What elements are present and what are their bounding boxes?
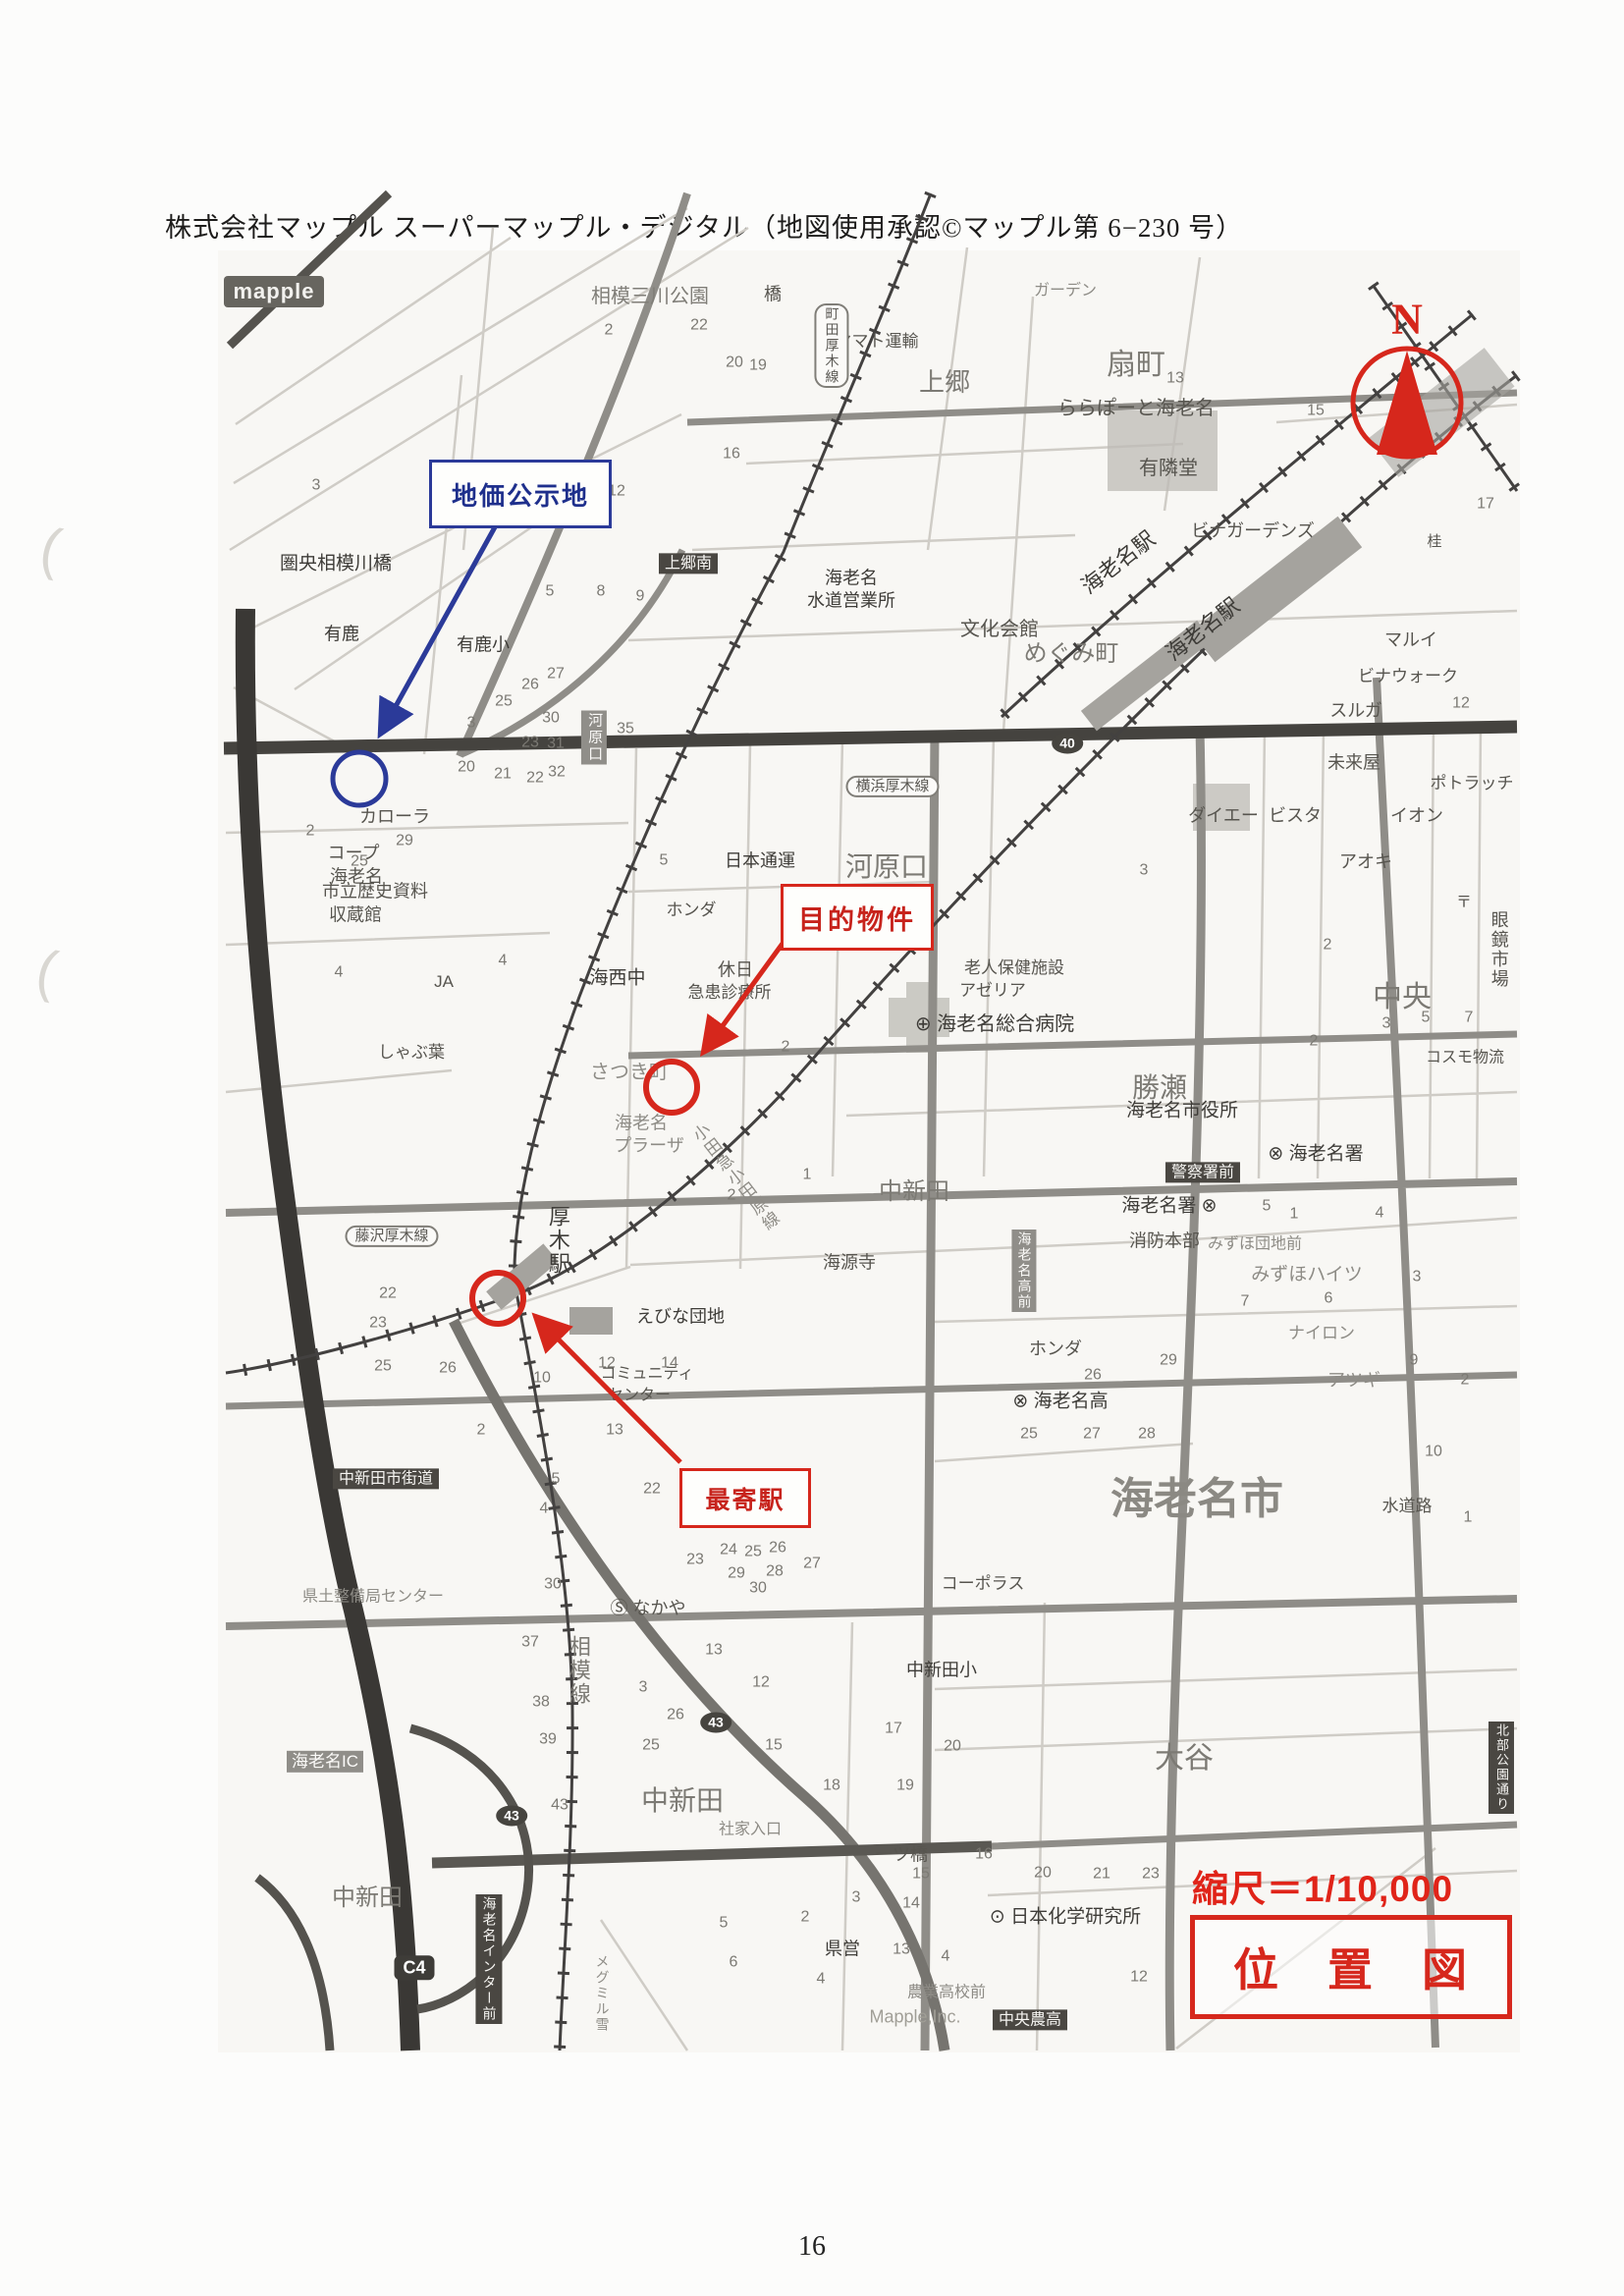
parcel-number: 35 [617, 720, 634, 737]
map-label: 眼鏡市場 [1489, 910, 1507, 989]
parcel-number: 5 [1263, 1197, 1272, 1214]
land-price-callout: 地価公示地 [429, 460, 612, 528]
map-label: コスモ物流 [1426, 1049, 1504, 1066]
parcel-number: 26 [769, 1539, 786, 1556]
map-label: ナイロン [1288, 1325, 1355, 1342]
parcel-number: 20 [944, 1737, 961, 1754]
parcel-number: 2 [1324, 936, 1332, 953]
map-label: さつき町 [590, 1063, 669, 1084]
map-label: しゃぶ葉 [378, 1044, 445, 1062]
map-label: アゼリア [959, 982, 1026, 1000]
parcel-number: 18 [823, 1777, 840, 1793]
parcel-number: 1 [803, 1166, 812, 1182]
map-label: 桂 [1427, 534, 1441, 550]
map-label: プラーザ [614, 1136, 684, 1155]
parcel-number: 30 [542, 709, 560, 726]
map-label: C4 [394, 1955, 434, 1980]
map-label: 中新田市街道 [333, 1468, 439, 1489]
parcel-number: 13 [1166, 369, 1184, 386]
parcel-number: 9 [636, 587, 645, 604]
map-label: ホンダ [1029, 1339, 1082, 1358]
map-label: 海老名 [330, 867, 383, 886]
parcel-number: 28 [766, 1562, 784, 1579]
map-label: 北部公園通り [1489, 1722, 1514, 1814]
parcel-number: 28 [1138, 1425, 1156, 1442]
map-label: ⊙ 日本化学研究所 [990, 1908, 1141, 1929]
map-label: えびな団地 [636, 1307, 725, 1326]
parcel-number: 26 [667, 1706, 684, 1722]
parcel-number: 4 [942, 1947, 950, 1964]
map-label: 43 [700, 1712, 731, 1732]
parcel-number: 29 [1160, 1351, 1177, 1368]
map-label: 海老名駅 [1162, 594, 1244, 666]
map-label: スルガ [1329, 701, 1381, 720]
map-label: 海源寺 [823, 1253, 876, 1272]
parcel-number: 23 [521, 734, 539, 750]
parcel-number: 13 [893, 1941, 910, 1957]
parcel-number: 15 [912, 1865, 930, 1882]
parcel-number: 38 [532, 1693, 550, 1710]
parcel-number: 3 [1382, 1014, 1391, 1031]
map-label: 圏央相模川橋 [280, 555, 392, 575]
map-label: 海老名 [825, 569, 878, 587]
map-label: ビナガーデンズ [1191, 521, 1315, 540]
parcel-number: 25 [374, 1357, 392, 1374]
map-label: 町田厚木線 [814, 303, 848, 388]
parcel-number: 10 [1425, 1443, 1442, 1459]
map-label: 扇町 [1107, 350, 1165, 381]
parcel-number: 2 [1461, 1371, 1470, 1388]
parcel-number: 12 [1130, 1968, 1148, 1985]
map-label: イオン [1390, 806, 1443, 825]
parcel-number: 25 [1020, 1425, 1038, 1442]
parcel-number: 15 [1307, 402, 1325, 418]
parcel-number: 15 [765, 1736, 783, 1753]
map-label: ガーデン [1034, 282, 1097, 299]
nearest-station-callout: 最寄駅 [679, 1468, 811, 1528]
parcel-number: 7 [1241, 1292, 1250, 1309]
parcel-number: 12 [752, 1673, 770, 1690]
parcel-number: 3 [1140, 861, 1149, 878]
parcel-number: 22 [690, 316, 708, 333]
map-label: カローラ [359, 807, 430, 826]
parcel-number: 4 [1376, 1204, 1384, 1221]
map-label: 海西中 [589, 969, 645, 990]
parcel-number: 26 [439, 1359, 457, 1376]
parcel-number: 23 [1142, 1865, 1160, 1882]
parcel-number: 26 [521, 676, 539, 692]
map-label: アツギ [1327, 1371, 1380, 1390]
map-label: ビスタ [1269, 806, 1322, 825]
map-label: 中央農高 [993, 2009, 1067, 2030]
parcel-number: 13 [705, 1641, 723, 1658]
map-label: 水道路 [1382, 1498, 1433, 1515]
parcel-number: 2 [605, 321, 614, 338]
parcel-number: 17 [885, 1720, 902, 1736]
parcel-number: 4 [540, 1500, 549, 1516]
map-label: 中新田 [879, 1179, 949, 1205]
parcel-number: 17 [1477, 495, 1494, 512]
parcel-number: 8 [597, 582, 606, 599]
parcel-number: 37 [521, 1633, 539, 1650]
parcel-number: 4 [499, 952, 508, 968]
parcel-number: 21 [1093, 1865, 1110, 1882]
map-label: ⊗ 海老名高 [1012, 1393, 1108, 1413]
parcel-number: 22 [379, 1285, 397, 1301]
map-label: 有鹿 [324, 625, 359, 643]
parcel-number: 29 [396, 832, 413, 848]
parcel-number: 3 [1413, 1268, 1422, 1285]
map-label: ポトラッチ [1431, 775, 1514, 793]
map-label: アオキ [1339, 852, 1392, 871]
map-label: ⊗ 海老名署 [1268, 1145, 1363, 1166]
parcel-number: 21 [494, 765, 512, 782]
parcel-number: 13 [606, 1421, 623, 1438]
map-label: 43 [496, 1805, 527, 1826]
map-label: 上郷 [919, 368, 970, 396]
map-label: コーポラス [942, 1575, 1025, 1593]
map-label: 海老名 [615, 1114, 668, 1132]
map-label: みずほ団地前 [1208, 1235, 1302, 1252]
scale-note: 縮尺＝1/10,000 [1192, 1859, 1453, 1912]
parcel-number: 2 [1310, 1032, 1319, 1049]
parcel-number: 1 [1464, 1508, 1473, 1525]
map-label: 有鹿小 [457, 635, 510, 654]
parcel-number: 25 [495, 692, 513, 709]
map-label: ⊕ 海老名総合病院 [915, 1014, 1074, 1036]
location-map-stamp: 位 置 図 [1190, 1915, 1512, 2019]
map-label: 中新田 [641, 1786, 724, 1816]
parcel-number: 20 [458, 758, 475, 775]
parcel-number: 5 [720, 1914, 729, 1931]
parcel-number: 19 [896, 1777, 914, 1793]
map-label: 消防本部 [1129, 1231, 1200, 1250]
map-label: 厚木駅 [546, 1205, 569, 1276]
parcel-number: 2 [801, 1908, 810, 1925]
map-label: 日本通運 [725, 851, 795, 870]
map-label: 海老名インター前 [475, 1894, 502, 2024]
map-label: 相模線 [567, 1635, 590, 1706]
map-label: 横浜厚木線 [845, 776, 939, 797]
map-label: 橋 [764, 285, 782, 303]
map-label: マルイ [1384, 630, 1437, 649]
map-label: 中新田 [332, 1886, 403, 1911]
map-label: 上郷南 [659, 553, 718, 574]
parcel-number: 2 [477, 1421, 486, 1438]
parcel-number: 5 [660, 851, 669, 868]
parcel-number: 27 [547, 665, 565, 682]
map-label: Ⓢ なかや [610, 1599, 685, 1617]
map-label: メグミル雪 [594, 1954, 609, 2033]
map-label: 警察署前 [1165, 1162, 1240, 1182]
parcel-number: 5 [1422, 1009, 1431, 1025]
parcel-number: 5 [552, 1470, 561, 1487]
map-label: 急患診療所 [688, 984, 772, 1002]
map-label: Mapple,Inc. [869, 2007, 960, 2026]
map-label: 休日 [718, 960, 753, 979]
map-label: 水道営業所 [807, 591, 895, 610]
parcel-number: 14 [661, 1354, 678, 1371]
parcel-number: 19 [749, 356, 767, 373]
map-label: 海老名駅 [1077, 527, 1160, 599]
subject-property-callout: 目的物件 [781, 884, 934, 951]
map-label: 海老名市 [1110, 1476, 1283, 1523]
map-label: ホンダ [667, 902, 717, 919]
parcel-number: 22 [526, 769, 544, 786]
document-page: 株式会社マップル スーパーマップル・デジタル（地図使用承認©マップル第 6−23… [0, 0, 1624, 2296]
map-label: 文化会館 [960, 620, 1039, 641]
parcel-number: 4 [335, 963, 344, 980]
map-label: 未来屋 [1327, 753, 1380, 772]
map-label: 一ツ橋 [875, 1845, 928, 1864]
parcel-number: 9 [1410, 1351, 1419, 1368]
map-label: 農業高校前 [907, 1984, 986, 2000]
parcel-number: 6 [730, 1953, 738, 1970]
parcel-number: 12 [598, 1354, 616, 1371]
parcel-number: 20 [726, 354, 743, 370]
map-label: 老人保健施設 [964, 959, 1064, 977]
map-label: ビナウォーク [1358, 668, 1458, 685]
map-label: 藤沢厚木線 [345, 1226, 438, 1247]
parcel-number: 3 [312, 476, 321, 493]
parcel-number: 32 [548, 763, 566, 780]
parcel-number: 3 [639, 1678, 648, 1695]
map-label: 県営 [825, 1940, 860, 1958]
map-label: 〒 [1456, 894, 1472, 910]
map-label: センター [608, 1387, 671, 1403]
map-label: 大谷 [1155, 1743, 1214, 1775]
map-label: 有隣堂 [1139, 459, 1198, 480]
parcel-number: 10 [533, 1369, 551, 1386]
parcel-number: 20 [1034, 1864, 1052, 1881]
parcel-number: 23 [369, 1314, 387, 1331]
parcel-number: 2 [728, 1186, 736, 1203]
map-label: 海老名IC [287, 1751, 363, 1773]
parcel-number: 25 [744, 1543, 762, 1559]
parcel-number: 22 [643, 1480, 661, 1497]
parcel-number: 25 [642, 1736, 660, 1753]
map-label: 県土整備局センター [302, 1588, 444, 1605]
map-label: めぐみ町 [1024, 641, 1119, 667]
map-label: ダイエー [1188, 806, 1259, 825]
map-label: 勝瀬 [1132, 1073, 1187, 1103]
parcel-number: 27 [1083, 1425, 1101, 1442]
parcel-number: 24 [720, 1541, 737, 1558]
parcel-number: 2 [782, 1038, 790, 1055]
parcel-number: 23 [686, 1551, 704, 1567]
parcel-number: 4 [817, 1970, 826, 1987]
map-label: 海老名高前 [1011, 1230, 1036, 1312]
parcel-number: 27 [803, 1555, 821, 1571]
north-label: N [1391, 295, 1423, 345]
map-label: 小田急小田原線 [687, 1121, 782, 1235]
parcel-number: 14 [902, 1894, 920, 1911]
parcel-number: 3 [467, 714, 476, 731]
parcel-number: 29 [728, 1564, 745, 1581]
parcel-number: 7 [1465, 1009, 1474, 1025]
map-label: ららぽーと海老名 [1057, 399, 1215, 420]
map-label: 収蔵館 [329, 905, 382, 924]
parcel-number: 31 [547, 735, 565, 751]
parcel-number: 16 [975, 1845, 993, 1862]
map-label: 河原口 [581, 711, 607, 765]
map-label: 海老名署 ⊗ [1121, 1197, 1217, 1218]
map-label: 社家入口 [719, 1821, 782, 1837]
parcel-number: 16 [723, 445, 740, 462]
parcel-number: 6 [1325, 1289, 1333, 1306]
map-label: みずほハイツ [1251, 1266, 1363, 1286]
parcel-number: 1 [1290, 1205, 1299, 1222]
parcel-number: 3 [852, 1888, 861, 1905]
parcel-number: 2 [306, 822, 315, 839]
parcel-number: 30 [749, 1579, 767, 1596]
map-label: JA [434, 973, 454, 991]
map-label: 河原口 [845, 852, 928, 882]
parcel-number: 26 [1084, 1366, 1102, 1383]
parcel-number: 5 [546, 582, 555, 599]
parcel-number: 43 [551, 1796, 568, 1813]
map-label: 40 [1052, 733, 1083, 753]
map-label: 海老名市役所 [1126, 1102, 1238, 1122]
map-label: 相模三川公園 [591, 287, 709, 308]
parcel-number: 30 [544, 1575, 562, 1592]
parcel-number: 25 [351, 852, 368, 869]
parcel-number: 39 [539, 1730, 557, 1747]
parcel-number: 12 [1452, 694, 1470, 711]
page-number: 16 [0, 2231, 1624, 2263]
map-label: 中新田小 [906, 1661, 977, 1679]
